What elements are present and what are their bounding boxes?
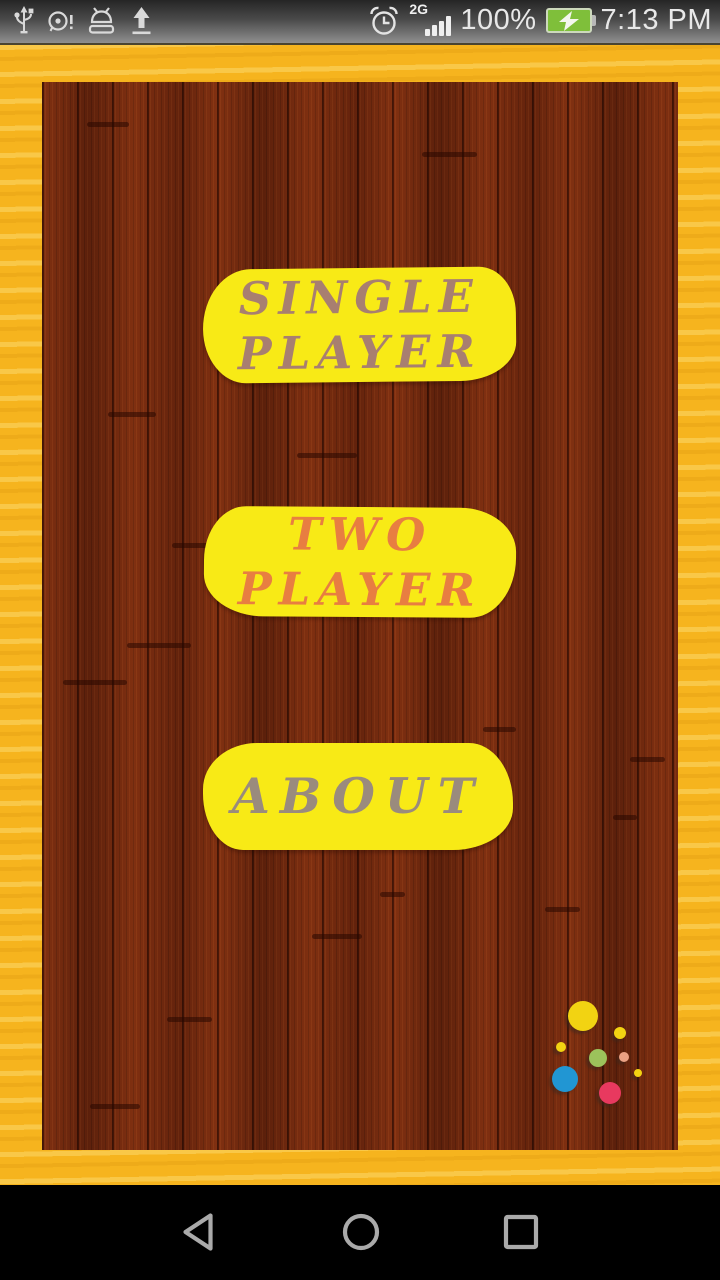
two-player-label-line2: PLAYER (238, 561, 482, 618)
plank-mark (422, 152, 477, 157)
signal-indicator: 2G (409, 4, 451, 38)
back-icon[interactable] (178, 1210, 222, 1254)
status-bar-left-icons (12, 5, 154, 37)
home-icon[interactable] (339, 1210, 383, 1254)
two-player-button[interactable]: TWO PLAYER (204, 506, 517, 618)
plank-mark (380, 892, 405, 897)
confetti-dot (614, 1027, 626, 1039)
alert-circle-icon (47, 5, 74, 37)
network-type-label: 2G (409, 2, 428, 16)
plank-mark (545, 907, 580, 912)
single-player-label-line1: SINGLE (238, 269, 480, 327)
plank-mark (297, 453, 357, 458)
battery-percent-label: 100% (460, 6, 536, 35)
upload-icon (129, 5, 154, 37)
alarm-icon (368, 5, 400, 37)
plank-mark (613, 815, 637, 820)
plank-mark (90, 1104, 140, 1109)
confetti-dot (634, 1069, 642, 1077)
android-debug-icon (85, 5, 118, 37)
confetti-dot (619, 1052, 629, 1062)
plank-mark (483, 727, 516, 732)
usb-icon (12, 5, 36, 37)
about-button[interactable]: ABOUT (203, 743, 513, 850)
status-bar: 2G 100% 7:13 PM (0, 0, 720, 45)
single-player-label-line2: PLAYER (238, 324, 483, 382)
recents-icon[interactable] (499, 1210, 543, 1254)
confetti-dot (568, 1001, 598, 1031)
battery-charging-icon (546, 8, 592, 33)
plank-mark (312, 934, 362, 939)
two-player-label-line1: TWO (288, 506, 433, 562)
confetti-dot (589, 1049, 607, 1067)
confetti-dot (599, 1082, 621, 1104)
plank-mark (108, 412, 156, 417)
plank-mark (87, 122, 129, 127)
wood-panel: SINGLE PLAYER TWO PLAYER ABOUT (42, 82, 678, 1150)
plank-mark (630, 757, 665, 762)
clock-label: 7:13 PM (601, 6, 713, 35)
plank-mark (127, 643, 191, 648)
plank-mark (167, 1017, 212, 1022)
game-background-frame: SINGLE PLAYER TWO PLAYER ABOUT (0, 45, 720, 1185)
about-label: ABOUT (232, 769, 484, 824)
single-player-button[interactable]: SINGLE PLAYER (202, 266, 516, 383)
status-bar-right: 2G 100% 7:13 PM (368, 4, 712, 38)
confetti-dot (552, 1066, 578, 1092)
android-nav-bar (0, 1185, 720, 1280)
confetti-dot (556, 1042, 566, 1052)
phone-screen: 2G 100% 7:13 PM SINGLE PLAYER TWO PLAYER (0, 0, 720, 1280)
plank-mark (63, 680, 127, 685)
signal-bars (425, 16, 451, 36)
